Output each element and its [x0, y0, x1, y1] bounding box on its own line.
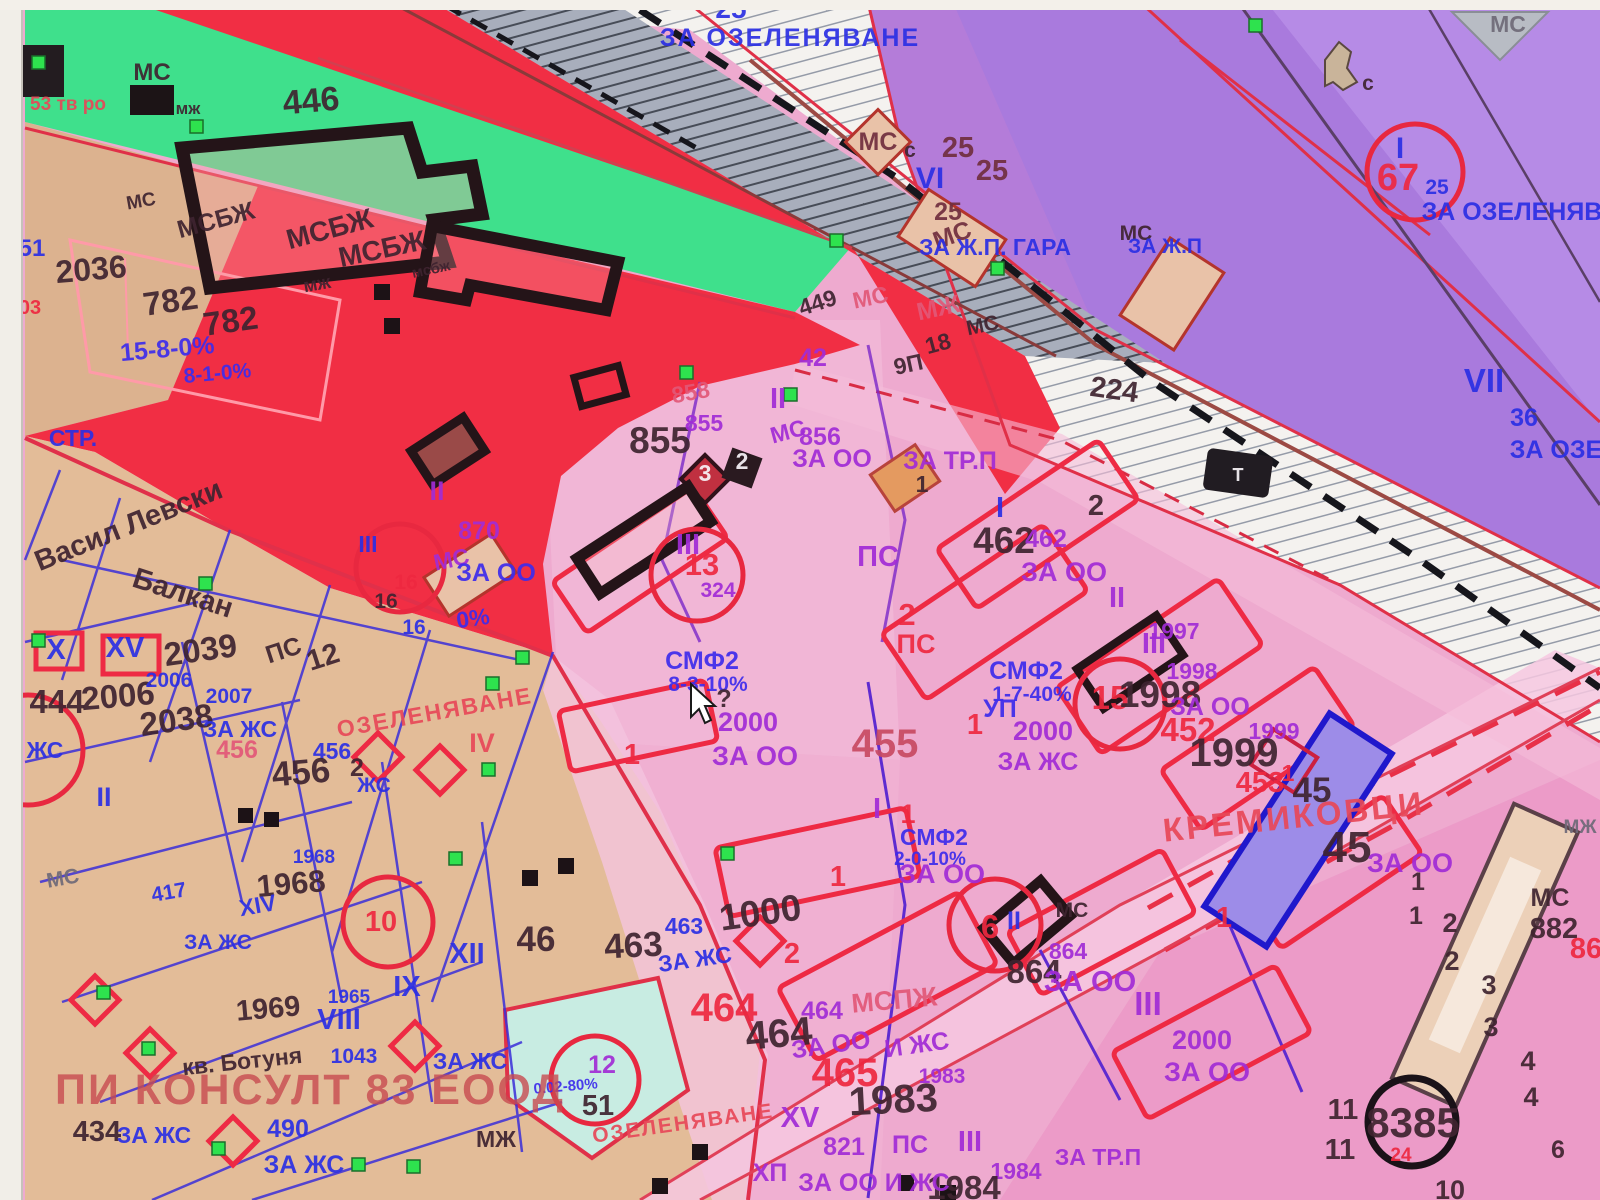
map-label: УП [983, 695, 1017, 723]
map-label: 86 [1570, 933, 1600, 965]
map-label: 2 [736, 448, 749, 474]
map-label: 434 [73, 1116, 121, 1148]
green-marker [97, 986, 110, 999]
map-label: 1043 [331, 1045, 378, 1068]
map-label: МС [1490, 11, 1526, 37]
map-label: ЗА ОЗЕЛЕНЯВАНЕ [660, 24, 920, 52]
green-marker [680, 366, 693, 379]
map-label: X [46, 634, 66, 666]
map-label: 3 [1483, 1012, 1498, 1042]
map-label: 444 [29, 683, 85, 720]
map-label: II [770, 383, 786, 415]
map-label: ПС [892, 1131, 928, 1159]
map-label: ЗА ОО [1021, 557, 1107, 587]
map-label: ЗА ОО [456, 559, 536, 587]
map-label: ЗА ОО [1164, 1057, 1250, 1087]
map-label: 2 [898, 597, 915, 632]
map-label: 2 [784, 938, 800, 970]
map-label: 24 [1390, 1145, 1412, 1166]
map-label: 25 [942, 132, 974, 164]
map-label: ЗА ЖС [998, 748, 1079, 776]
map-label: XV [106, 632, 145, 664]
map-label: 0% [455, 603, 492, 633]
map-label: 821 [823, 1133, 865, 1161]
map-label: ЗА ОО [899, 859, 985, 889]
map-label: ЗА ОЗЕЛЕНЯВ [1422, 198, 1600, 226]
zoning-map[interactable]: 25ЗА ОЗЕЛЕНЯВАНЕМСсVI252525МСЗА Ж.П. ГАР… [0, 0, 1600, 1200]
map-label: IV [469, 728, 495, 758]
map-label: 25 [976, 155, 1008, 187]
map-label: ЗА Ж.П [1128, 235, 1202, 258]
map-label: 10 [365, 906, 397, 938]
map-label: ЖС [26, 737, 64, 763]
green-marker [407, 1160, 420, 1173]
map-label: СТР. [49, 425, 97, 451]
green-marker [516, 651, 529, 664]
map-label: ЗА Ж.П. ГАРА [919, 234, 1071, 260]
map-label: II [1109, 582, 1125, 614]
map-label: 4 [1523, 1082, 1538, 1112]
map-label: 46 [517, 920, 556, 959]
map-label: III [1134, 985, 1162, 1022]
green-marker [352, 1158, 365, 1171]
green-marker [190, 120, 203, 133]
screen-bezel-top [0, 0, 1600, 10]
map-label: с [1362, 72, 1374, 95]
map-label: ЗА ЖС [264, 1151, 345, 1179]
map-label: 3 [699, 460, 712, 486]
green-marker [721, 847, 734, 860]
map-label: 463 [603, 925, 663, 967]
map-label: МС [133, 59, 170, 86]
map-label: ЗА ОО [792, 445, 872, 473]
green-marker [212, 1142, 225, 1155]
map-label: I [873, 793, 881, 825]
map-label: 2007 [206, 685, 253, 708]
map-label: 462 [1025, 525, 1067, 553]
map-label: 36 [1510, 404, 1538, 432]
map-label: 1 [624, 739, 640, 771]
map-label: III [1142, 628, 1166, 660]
map-label: 456 [270, 751, 332, 795]
map-label: 1 [830, 861, 846, 893]
map-label: с [904, 139, 916, 162]
green-marker [32, 56, 45, 69]
map-label: VII [1464, 362, 1504, 399]
map-label: IX [393, 971, 421, 1003]
green-marker [1249, 19, 1262, 32]
map-label: 16 [394, 571, 417, 594]
map-label: II [429, 476, 444, 506]
map-label: 870 [458, 517, 500, 545]
map-label: VIII [317, 1004, 361, 1036]
map-label: 42 [799, 344, 827, 372]
map-label: 446 [281, 80, 341, 123]
map-label: 2000 [718, 707, 778, 737]
map-label: 324 [700, 579, 735, 602]
map-label: СМФ2 [665, 647, 739, 675]
green-marker [449, 852, 462, 865]
map-label: 1968 [293, 847, 335, 868]
green-marker [482, 763, 495, 776]
map-label: 464 [801, 997, 843, 1025]
map-label: 1 [1282, 760, 1295, 786]
map-label: 67 [1377, 157, 1419, 199]
building-icon-corner [22, 45, 64, 97]
map-label: 6 [1551, 1136, 1565, 1164]
map-label: 1998 [1166, 658, 1217, 684]
map-label: 2036 [54, 248, 128, 290]
map-label: 3 [1481, 970, 1496, 1000]
map-label: 16 [374, 590, 397, 613]
screen-photo: 25ЗА ОЗЕЛЕНЯВАНЕМСсVI252525МСЗА Ж.П. ГАР… [0, 0, 1600, 1200]
map-label: 2 [1088, 490, 1104, 522]
map-label: 1 [916, 471, 929, 497]
screen-bezel-left [0, 0, 22, 1200]
map-label: 10 [1435, 1175, 1465, 1200]
map-label: XV [781, 1102, 820, 1134]
map-label: мж [176, 99, 202, 118]
map-label: 51 [582, 1090, 614, 1122]
map-label: 855 [629, 420, 691, 461]
map-label: 2000 [1172, 1025, 1232, 1055]
green-marker [830, 234, 843, 247]
map-label: 53 тв ро [30, 94, 106, 115]
map-label: 16 [402, 616, 425, 639]
map-label: 1983 [919, 1065, 966, 1088]
map-label: СМФ2 [989, 657, 1063, 685]
map-label: III [358, 531, 377, 557]
map-label: 2006 [146, 669, 193, 692]
building-icon-top [130, 85, 174, 115]
map-label: 782 [141, 278, 201, 322]
map-label: II [1007, 907, 1021, 935]
map-label: МС [1531, 884, 1570, 912]
map-label: ЗА ТР.П [1055, 1144, 1141, 1170]
map-label: 490 [267, 1115, 309, 1143]
map-label: VI [916, 162, 944, 195]
green-marker [142, 1042, 155, 1055]
map-label: 453 [1236, 767, 1284, 799]
map-label: 463 [665, 913, 703, 939]
map-label: МС [1056, 899, 1089, 922]
map-label: 11 [1325, 1134, 1356, 1166]
map-label: 13 [685, 547, 719, 582]
map-label: ЗА ОО [1044, 966, 1136, 998]
map-label: 8-3-10% [668, 673, 748, 696]
map-label: XII [449, 938, 484, 970]
map-label: II [96, 782, 111, 812]
map-label: 455 [852, 722, 919, 766]
map-label: 11 [1328, 1094, 1359, 1126]
map-label: 6 [981, 908, 999, 945]
map-label: ПС [897, 629, 936, 659]
map-label: 1 [967, 709, 983, 741]
map-label: ЗА ОО И ЖС [798, 1169, 949, 1197]
map-label: III [958, 1126, 982, 1158]
map-label: 456 [216, 736, 258, 764]
map-label: 1969 [235, 990, 302, 1028]
watermark-text: ПИ КОНСУЛТ 83 ЕООД [55, 1066, 565, 1114]
map-label: 1 [1409, 902, 1423, 930]
map-label: ХП [753, 1159, 788, 1187]
map-label: МЖ [1564, 817, 1598, 838]
map-label: 45 [1293, 771, 1332, 810]
map-label: ЗА ОО [1367, 848, 1453, 878]
map-label: 4 [1520, 1046, 1535, 1076]
map-label: 2000 [1013, 716, 1073, 746]
map-label: ПС [857, 541, 899, 573]
map-label: 2 [1442, 908, 1457, 938]
map-label: ЗА ОО [712, 741, 798, 771]
map-label: МС [859, 128, 898, 156]
map-label: 855 [685, 410, 724, 436]
map-label: ЗА ЖС [184, 931, 252, 954]
green-marker [32, 634, 45, 647]
green-marker [991, 262, 1004, 275]
map-label: ЗА ЖС [117, 1122, 191, 1148]
map-label: 25 [1425, 176, 1449, 199]
map-label: МЖ [476, 1126, 516, 1152]
map-label: 1 [900, 799, 915, 829]
map-label: 1 [1216, 902, 1232, 934]
map-label: 1 [1411, 868, 1425, 896]
map-label: ЖС [356, 774, 391, 797]
map-label: ЗА ОЗЕ [1510, 436, 1600, 464]
map-label: 45 [1323, 823, 1372, 872]
map-label: 8385 [1366, 1099, 1459, 1146]
map-label: Т [1233, 465, 1244, 485]
map-label: 2 [1444, 946, 1459, 976]
map-label: 224 [1088, 371, 1140, 409]
